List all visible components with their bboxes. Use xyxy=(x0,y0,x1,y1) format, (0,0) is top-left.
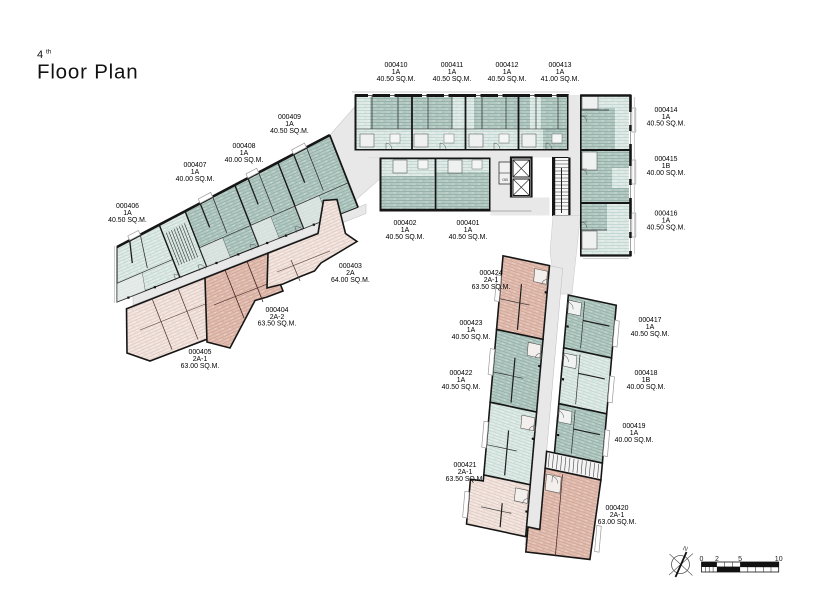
svg-text:40.50 SQ.M.: 40.50 SQ.M. xyxy=(442,384,481,391)
svg-text:40.00 SQ.M.: 40.00 SQ.M. xyxy=(627,384,666,391)
svg-text:2: 2 xyxy=(715,556,719,563)
svg-text:63.00 SQ.M.: 63.00 SQ.M. xyxy=(181,363,220,370)
svg-text:0: 0 xyxy=(700,556,704,563)
svg-text:63.00 SQ.M.: 63.00 SQ.M. xyxy=(598,519,637,526)
svg-text:OB: OB xyxy=(502,177,508,182)
svg-text:40.50 SQ.M.: 40.50 SQ.M. xyxy=(452,334,491,341)
svg-text:64.00 SQ.M.: 64.00 SQ.M. xyxy=(331,277,370,284)
svg-text:40.50 SQ.M.: 40.50 SQ.M. xyxy=(386,234,425,241)
svg-text:41.00 SQ.M.: 41.00 SQ.M. xyxy=(541,76,580,83)
svg-text:4: 4 xyxy=(37,49,43,61)
svg-text:N: N xyxy=(682,545,689,553)
svg-text:40.50 SQ.M.: 40.50 SQ.M. xyxy=(449,234,488,241)
svg-text:40.50 SQ.M.: 40.50 SQ.M. xyxy=(108,217,147,224)
svg-text:63.50 SQ.M.: 63.50 SQ.M. xyxy=(446,476,485,483)
svg-text:63.50 SQ.M.: 63.50 SQ.M. xyxy=(258,321,297,328)
svg-text:40.50 SQ.M.: 40.50 SQ.M. xyxy=(433,76,472,83)
svg-text:40.50 SQ.M.: 40.50 SQ.M. xyxy=(647,121,686,128)
svg-text:63.50 SQ.M.: 63.50 SQ.M. xyxy=(472,284,511,291)
svg-text:40.00 SQ.M.: 40.00 SQ.M. xyxy=(615,437,654,444)
svg-text:40.50 SQ.M.: 40.50 SQ.M. xyxy=(647,224,686,231)
svg-text:10: 10 xyxy=(775,556,783,563)
svg-text:40.50 SQ.M.: 40.50 SQ.M. xyxy=(377,76,416,83)
svg-text:Floor Plan: Floor Plan xyxy=(37,61,138,84)
svg-text:40.00 SQ.M.: 40.00 SQ.M. xyxy=(647,170,686,177)
svg-text:40.50 SQ.M.: 40.50 SQ.M. xyxy=(488,76,527,83)
svg-text:40.00 SQ.M.: 40.00 SQ.M. xyxy=(225,157,264,164)
svg-text:5: 5 xyxy=(738,556,742,563)
svg-text:40.00 SQ.M.: 40.00 SQ.M. xyxy=(176,176,215,183)
svg-text:40.50 SQ.M.: 40.50 SQ.M. xyxy=(631,331,670,338)
svg-text:40.50 SQ.M.: 40.50 SQ.M. xyxy=(270,128,309,135)
svg-text:th: th xyxy=(46,49,52,56)
